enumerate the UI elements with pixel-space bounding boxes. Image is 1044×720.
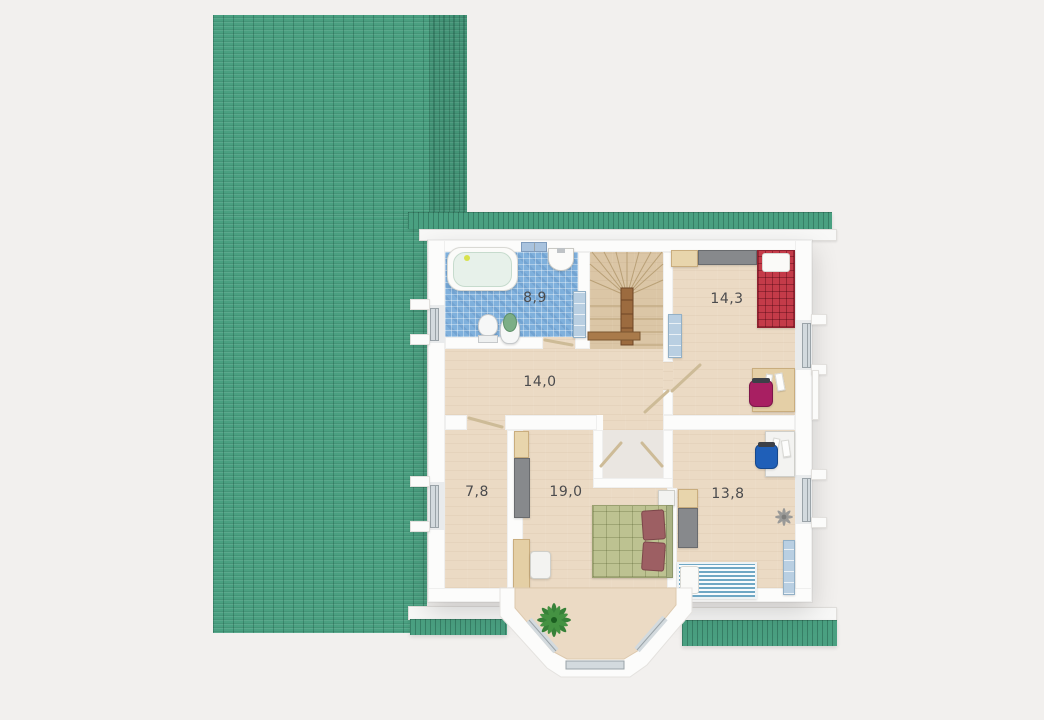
roof-eave-top xyxy=(408,212,832,229)
bed-pillow xyxy=(680,566,699,594)
bathroom-shelf xyxy=(573,291,586,338)
room-label-bedroom-bottom-right: 13,8 xyxy=(711,486,744,502)
wardrobe xyxy=(678,508,698,548)
gutter-bottom-left xyxy=(408,606,508,620)
bedroom-top-right-door-threshold xyxy=(663,362,673,390)
window-room-left-west xyxy=(430,485,439,528)
roof-fold-shading xyxy=(429,15,467,215)
window-sill-tab xyxy=(410,521,430,532)
niche-opening-floor xyxy=(603,415,663,430)
wall-east xyxy=(795,240,812,602)
room-label-bathroom: 8,9 xyxy=(523,290,547,306)
toilet xyxy=(478,314,498,336)
room-label-room-left: 7,8 xyxy=(465,484,489,500)
bathtub-basin xyxy=(453,252,512,287)
bathroom-door-threshold xyxy=(543,337,575,349)
cabinet xyxy=(514,431,529,458)
wall-stairwell-east-stub xyxy=(663,390,673,415)
wardrobe xyxy=(514,458,530,518)
dresser xyxy=(671,250,698,267)
room-label-bedroom-main: 19,0 xyxy=(549,484,582,500)
wall-bathroom-south-b xyxy=(575,337,590,349)
shelf xyxy=(783,540,795,595)
palm-plant-icon xyxy=(537,603,571,637)
room-left-door-threshold xyxy=(467,415,505,430)
window-sill-tab xyxy=(811,314,827,325)
wall-hall-south-a xyxy=(445,415,467,430)
window-bedroom-top-right-east xyxy=(802,323,811,368)
desk xyxy=(513,539,530,593)
toilet-tank xyxy=(478,335,498,343)
bay-opening-floor xyxy=(515,588,676,602)
office-chair-blue xyxy=(755,444,778,469)
window-bathroom-west xyxy=(430,308,439,341)
window-bathroom-north xyxy=(521,242,547,252)
wall-niche-bottom xyxy=(593,478,673,488)
bidet-lid xyxy=(503,313,517,332)
room-label-hallway: 14,0 xyxy=(523,374,556,390)
roof-main-lower xyxy=(213,215,427,633)
chair-backrest xyxy=(758,442,775,447)
roof-eave-bottom-left xyxy=(410,619,507,635)
window-sill-tab xyxy=(410,299,430,310)
window-sill-tab xyxy=(811,517,827,528)
window-bedroom-bottom-right-east xyxy=(802,478,811,522)
floor-plan-scene: 8,9 14,3 14,0 7,8 19,0 13,8 xyxy=(0,0,1044,720)
wall-west xyxy=(428,240,445,602)
window-sill-tab xyxy=(811,469,827,480)
roof-eave-bottom-right xyxy=(682,620,837,646)
dormer-wall-tab xyxy=(812,370,819,420)
room-label-bedroom-top-right: 14,3 xyxy=(710,291,743,307)
wall-south-left xyxy=(428,588,515,602)
wardrobe xyxy=(698,250,757,265)
bed-headboard xyxy=(666,505,673,578)
window-sill-tab xyxy=(410,334,430,345)
bed-pillow xyxy=(641,509,666,541)
bathtub-drain xyxy=(464,255,470,261)
nightstand xyxy=(658,490,675,506)
window-sill-tab xyxy=(410,476,430,487)
sink-faucet xyxy=(557,248,565,253)
chair xyxy=(530,551,551,579)
bed-pillow xyxy=(762,253,790,272)
wall-hall-south-c xyxy=(663,415,795,430)
room-left-floor xyxy=(445,430,507,588)
bed-pillow xyxy=(641,541,666,572)
gutter-bottom-right xyxy=(679,607,837,621)
wall-hall-south-b xyxy=(505,415,597,430)
office-chair-magenta xyxy=(749,380,773,407)
closet-niche-floor xyxy=(603,430,663,478)
chair-backrest xyxy=(752,378,770,383)
nightstand xyxy=(678,489,698,508)
stairwell-floor xyxy=(590,252,663,362)
bookshelf xyxy=(668,314,682,358)
